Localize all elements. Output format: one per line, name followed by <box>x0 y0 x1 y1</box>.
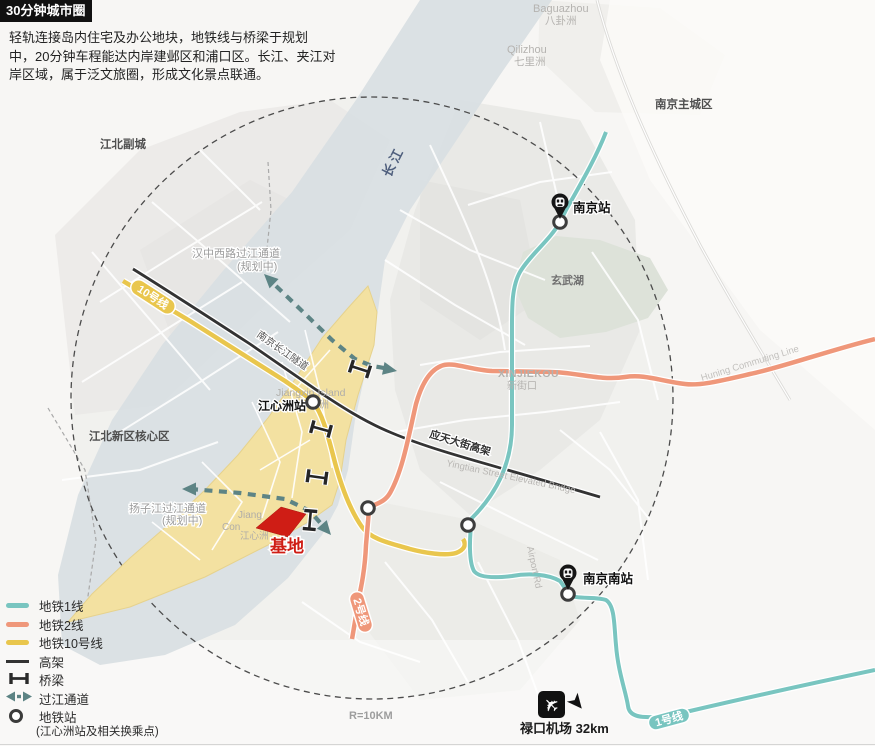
legend-item-bridge: 桥梁 <box>6 671 64 687</box>
station-label: 南京站 <box>573 200 611 215</box>
metro-station-icon <box>6 709 32 723</box>
airport-label: 禄口机场 32km <box>520 721 609 736</box>
line1-swatch-icon <box>6 603 32 608</box>
crossing-label: (规划中) <box>237 259 277 273</box>
crossing-label: (规划中) <box>162 513 202 527</box>
region-label: 江北新区核心区 <box>89 429 170 443</box>
line10-swatch-icon <box>6 640 32 645</box>
page-title: 30分钟城市圈 <box>0 0 92 22</box>
lake-label: 玄武湖 <box>551 273 584 287</box>
legend-item-station: 地铁站 <box>6 708 77 724</box>
legend-item-line10: 地铁10号线 <box>6 634 103 650</box>
legend-item-line1: 地铁1线 <box>6 597 83 613</box>
legend-label: 地铁2线 <box>39 615 83 634</box>
page-description: 轻轨连接岛内住宅及办公地块，地铁线与桥梁于规划 中，20分钟车程能达内岸建邺区和… <box>9 29 469 85</box>
svg-text:Con: Con <box>222 522 240 533</box>
region-label: 南京主城区 <box>655 97 713 111</box>
legend-label: 过江通道 <box>39 689 89 708</box>
island-label: Qilizhou <box>507 44 547 56</box>
station-label: 南京南站 <box>583 571 634 586</box>
elevated-swatch-icon <box>6 660 32 663</box>
site-label: 基地 <box>269 536 304 556</box>
region-label: 江北副城 <box>100 137 146 151</box>
island-label: Baguazhou <box>533 3 589 15</box>
legend-item-elevated: 高架 <box>6 653 64 669</box>
station-label: 江心洲站 <box>258 398 306 413</box>
legend-label: 地铁1线 <box>39 596 83 615</box>
island-label: 七里洲 <box>514 56 546 68</box>
legend-label: 桥梁 <box>39 670 64 689</box>
island-label: 八卦洲 <box>545 14 577 27</box>
svg-text:Jiang: Jiang <box>238 510 262 521</box>
legend-note: (江心洲站及相关换乘点) <box>36 723 159 739</box>
legend-item-crossing: 过江通道 <box>6 690 89 706</box>
line2-swatch-icon <box>6 622 32 627</box>
city-circle-map: Jiang Con 江心洲 <box>0 0 875 746</box>
crossing-label: 汉中西路过江通道 <box>192 246 280 260</box>
district-label: XINJIEKOU <box>498 368 559 380</box>
radius-label: R=10KM <box>349 710 393 722</box>
legend-label: 高架 <box>39 652 64 671</box>
svg-text:江心洲: 江心洲 <box>240 531 269 542</box>
legend-label: 地铁10号线 <box>39 633 103 652</box>
legend-item-line2: 地铁2线 <box>6 616 83 632</box>
metro-station-icon <box>307 396 320 409</box>
district-label: 新街口 <box>507 379 537 392</box>
metro-station-icon <box>462 519 475 532</box>
description-line: 中，20分钟车程能达内岸建邺区和浦口区。长江、夹江对 <box>9 48 469 67</box>
crossing-label: 扬子江过江通道 <box>129 501 206 515</box>
description-line: 轻轨连接岛内住宅及办公地块，地铁线与桥梁于规划 <box>9 29 469 48</box>
description-line: 岸区域，属于泛文旅圈，形成文化景点联通。 <box>9 66 469 85</box>
metro-station-icon <box>362 502 375 515</box>
bottom-divider <box>0 744 875 745</box>
planning-map-page: Jiang Con 江心洲 <box>0 0 875 746</box>
